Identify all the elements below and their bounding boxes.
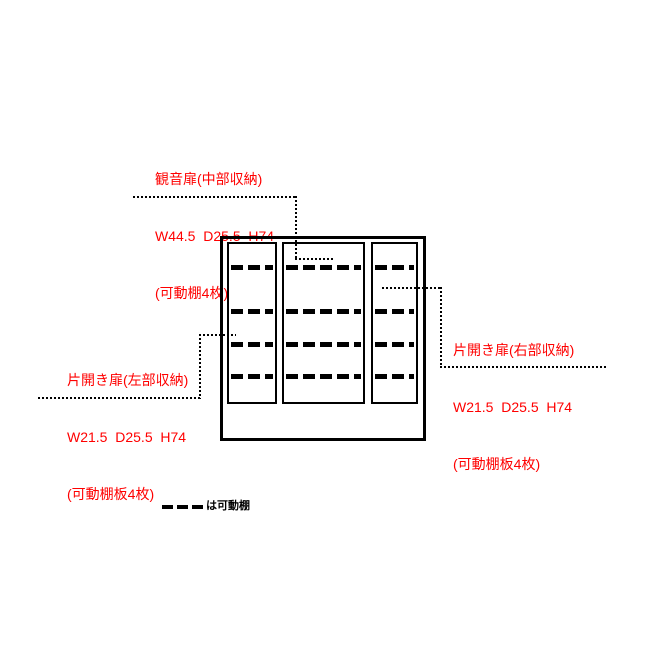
adjustable-shelf-line [286,265,361,270]
legend-dash-sample [162,505,204,509]
legend-label: は可動棚 [206,500,250,513]
leader-right-segment-horizontal [440,366,607,368]
cabinet-section-right [371,242,418,404]
label-right-dimensions: W21.5 D25.5 H74 [453,398,574,417]
label-right-storage: 片開き扉(右部収納) W21.5 D25.5 H74 (可動棚板4枚) [453,303,574,512]
adjustable-shelf-line [286,342,361,347]
adjustable-shelf-line [286,309,361,314]
leader-middle-segment-horizontal [133,196,297,198]
label-left-title: 片開き扉(左部収納) [67,371,188,390]
label-left-storage: 片開き扉(左部収納) W21.5 D25.5 H74 (可動棚板4枚) [67,333,188,542]
label-middle-title: 観音扉(中部収納) [155,170,274,189]
adjustable-shelf-line [375,309,414,314]
cabinet-section-middle [282,242,365,404]
adjustable-shelf-line [375,265,414,270]
leader-left-segment-vertical [199,334,201,399]
adjustable-shelf-line [231,309,273,314]
leader-left-segment-horizontal [38,397,201,399]
adjustable-shelf-line [375,374,414,379]
label-left-shelves: (可動棚板4枚) [67,485,188,504]
adjustable-shelf-line [286,374,361,379]
label-right-shelves: (可動棚板4枚) [453,455,574,474]
adjustable-shelf-line [375,342,414,347]
label-left-dimensions: W21.5 D25.5 H74 [67,428,188,447]
leader-right-segment-vertical [440,287,442,368]
diagram-canvas: 観音扉(中部収納) W44.5 D25.5 H74 (可動棚4枚) 片開き扉(左… [0,0,650,650]
cabinet-section-left [227,242,277,404]
label-right-title: 片開き扉(右部収納) [453,341,574,360]
adjustable-shelf-line [231,374,273,379]
adjustable-shelf-line [231,265,273,270]
adjustable-shelf-line [231,342,273,347]
